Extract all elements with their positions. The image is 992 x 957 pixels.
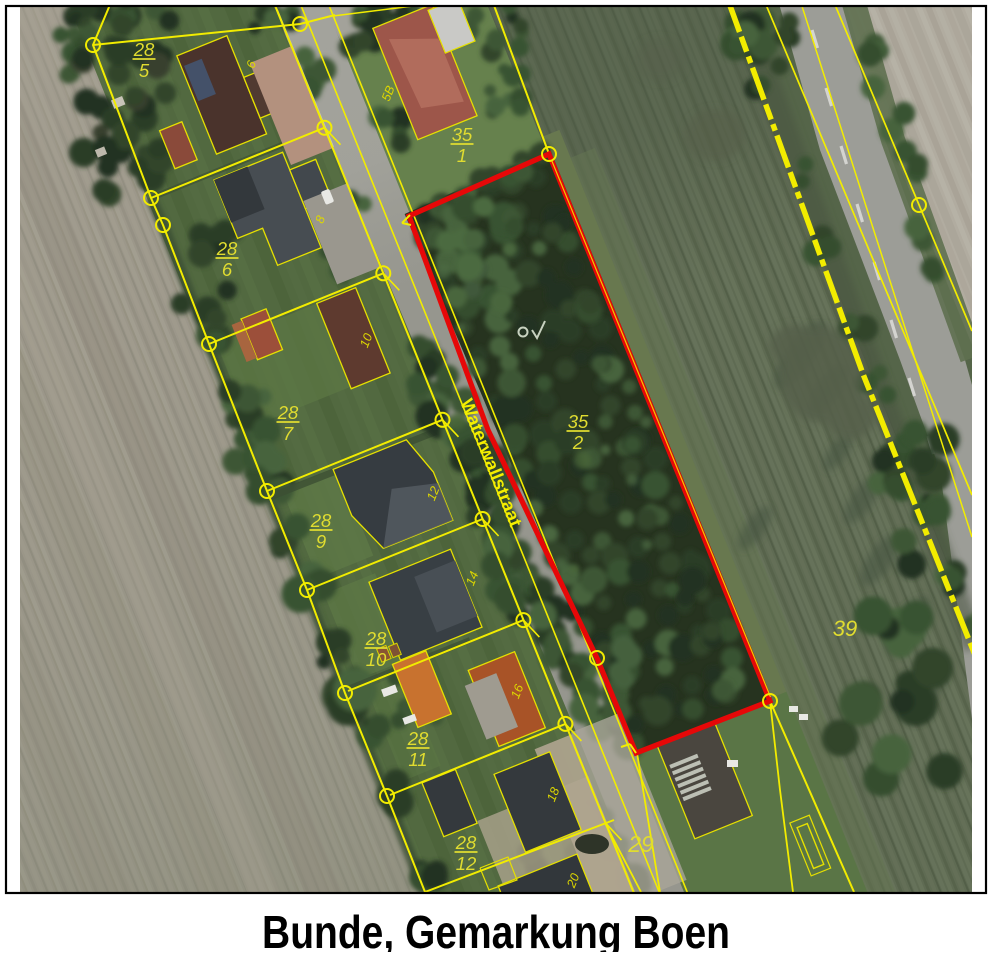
svg-text:28: 28	[407, 728, 429, 749]
svg-text:10: 10	[366, 649, 387, 670]
svg-text:11: 11	[408, 749, 427, 770]
svg-text:28: 28	[310, 510, 332, 531]
svg-text:7: 7	[283, 423, 294, 444]
svg-text:5: 5	[139, 60, 150, 81]
svg-text:1: 1	[457, 145, 467, 166]
svg-text:28: 28	[455, 832, 477, 853]
svg-text:28: 28	[277, 402, 299, 423]
svg-text:9: 9	[316, 531, 326, 552]
svg-text:6: 6	[222, 259, 233, 280]
svg-text:39: 39	[833, 616, 857, 641]
svg-text:28: 28	[365, 628, 387, 649]
svg-text:35: 35	[452, 124, 473, 145]
svg-text:29: 29	[627, 831, 654, 857]
svg-text:28: 28	[216, 238, 238, 259]
svg-text:2: 2	[572, 432, 584, 453]
svg-text:28: 28	[133, 39, 155, 60]
svg-text:12: 12	[456, 853, 477, 874]
svg-text:35: 35	[568, 411, 589, 432]
svg-text:Bunde, Gemarkung Boen: Bunde, Gemarkung Boen	[262, 907, 730, 952]
